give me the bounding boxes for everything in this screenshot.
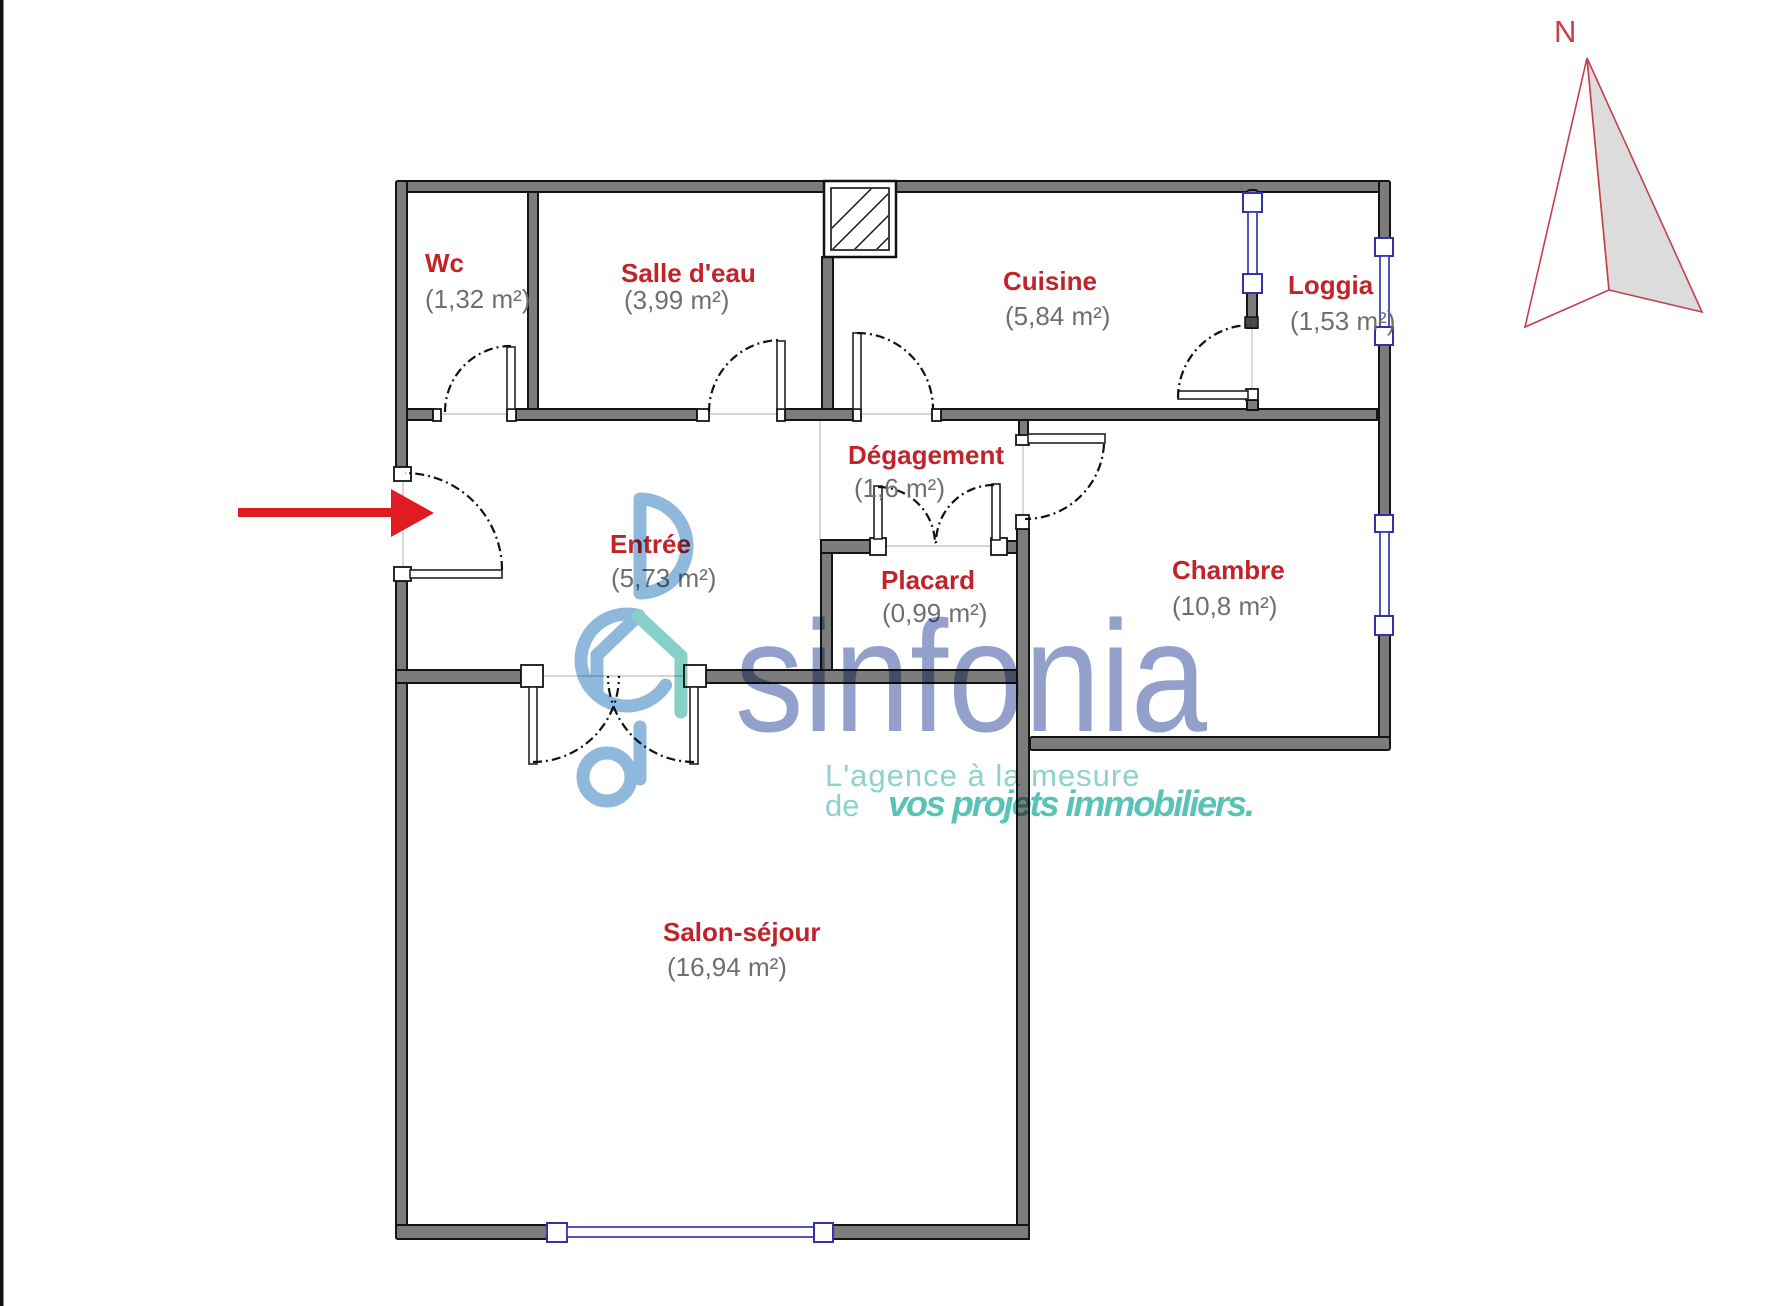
svg-text:de: de [825, 788, 859, 823]
svg-text:Chambre: Chambre [1172, 555, 1285, 585]
svg-text:Cuisine: Cuisine [1003, 266, 1097, 296]
svg-text:Loggia: Loggia [1288, 270, 1374, 300]
svg-text:Salle d'eau: Salle d'eau [621, 258, 756, 288]
svg-text:vos projets immobiliers.: vos projets immobiliers. [888, 783, 1255, 824]
svg-text:(16,94 m²): (16,94 m²) [667, 952, 787, 982]
svg-text:Salon-séjour: Salon-séjour [663, 917, 820, 947]
svg-text:(1,53 m²): (1,53 m²) [1290, 306, 1395, 336]
svg-text:(5,84 m²): (5,84 m²) [1005, 301, 1110, 331]
svg-text:N: N [1554, 14, 1576, 49]
svg-text:(1,6 m²): (1,6 m²) [854, 473, 945, 503]
svg-text:(1,32 m²): (1,32 m²) [425, 284, 530, 314]
svg-text:Wc: Wc [425, 248, 464, 278]
svg-text:sinfonia: sinfonia [735, 589, 1207, 765]
svg-text:Dégagement: Dégagement [848, 440, 1004, 470]
svg-text:(3,99 m²): (3,99 m²) [624, 285, 729, 315]
